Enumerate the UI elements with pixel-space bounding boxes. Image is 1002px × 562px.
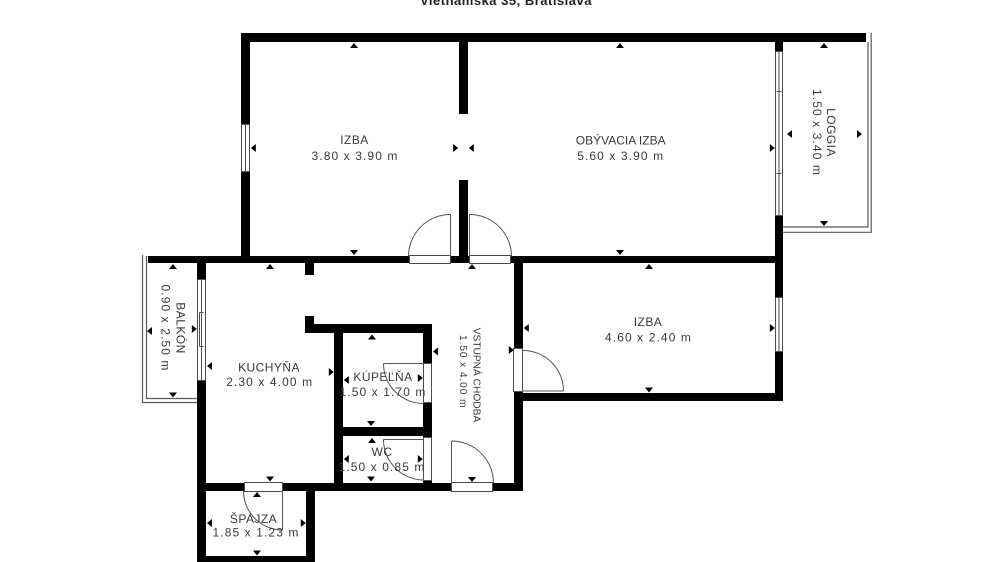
svg-text:2.30 x 4.00 m: 2.30 x 4.00 m: [226, 375, 313, 389]
svg-text:1.50 x 4.00 m: 1.50 x 4.00 m: [457, 335, 468, 408]
svg-text:IZBA: IZBA: [340, 133, 368, 147]
svg-text:Vietnamská 35, Bratislava: Vietnamská 35, Bratislava: [420, 0, 592, 8]
svg-text:ŠPAJZA: ŠPAJZA: [230, 511, 277, 526]
svg-text:WC: WC: [372, 445, 393, 459]
svg-text:3.80 x 3.90 m: 3.80 x 3.90 m: [311, 149, 398, 163]
svg-text:1.85 x 1.23 m: 1.85 x 1.23 m: [212, 526, 299, 540]
svg-text:4.60 x 2.40 m: 4.60 x 2.40 m: [605, 331, 692, 345]
svg-text:VSTUPNÁ CHODBA: VSTUPNÁ CHODBA: [470, 328, 483, 423]
svg-text:KÚPEĽŇA: KÚPEĽŇA: [353, 369, 412, 384]
svg-text:LOGGIA: LOGGIA: [824, 108, 838, 157]
svg-text:OBÝVACIA IZBA: OBÝVACIA IZBA: [576, 132, 666, 147]
svg-text:5.60 x 3.90 m: 5.60 x 3.90 m: [577, 149, 664, 163]
svg-text:0.90 x 2.50 m: 0.90 x 2.50 m: [159, 284, 173, 371]
svg-text:KUCHYŇA: KUCHYŇA: [238, 360, 300, 375]
svg-text:IZBA: IZBA: [634, 315, 662, 329]
svg-text:1.50 x 1.70 m: 1.50 x 1.70 m: [339, 385, 426, 399]
svg-text:1.50 x 0.85 m: 1.50 x 0.85 m: [338, 460, 425, 474]
svg-text:1.50 x 3.40 m: 1.50 x 3.40 m: [810, 89, 824, 176]
svg-text:BALKÓN: BALKÓN: [174, 302, 189, 353]
